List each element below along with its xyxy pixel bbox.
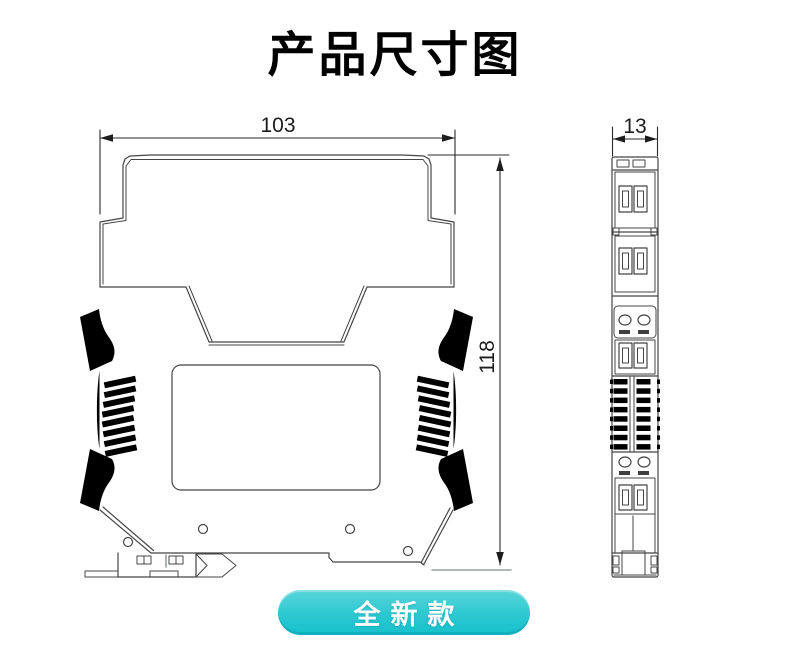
side-view (80, 155, 473, 577)
screw-hole (124, 538, 133, 547)
label-plate (172, 365, 380, 490)
dim-label-118: 118 (476, 340, 499, 373)
dim-label-13: 13 (623, 115, 646, 138)
dim-width-13: 13 (613, 115, 658, 156)
new-model-badge: 全新款 (278, 590, 530, 635)
badge-label: 全新款 (344, 593, 465, 632)
dim-width-103: 103 (100, 114, 455, 214)
dim-label-103: 103 (260, 114, 295, 137)
screw-hole (346, 525, 355, 534)
product-dimension-page: 产品尺寸图 (0, 0, 790, 660)
screw-hole (199, 525, 208, 534)
front-view (610, 157, 660, 577)
screw-hole (404, 547, 413, 556)
dim-height-118: 118 (428, 155, 511, 570)
din-rail-clip (85, 553, 236, 577)
dimension-drawing: 103 118 13 (0, 0, 790, 660)
